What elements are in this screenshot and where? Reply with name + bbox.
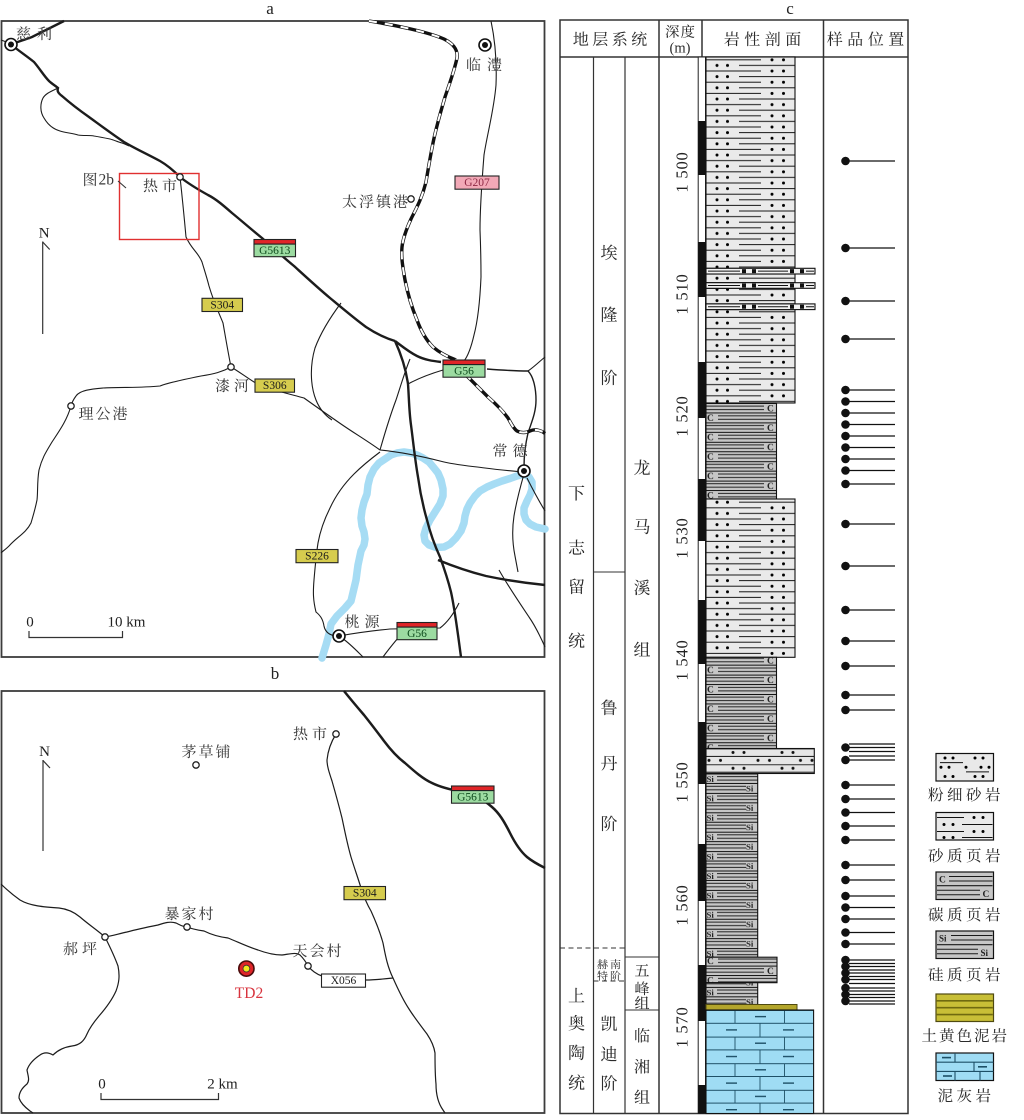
svg-text:Si: Si xyxy=(939,934,947,944)
svg-text:1 570: 1 570 xyxy=(673,1006,692,1047)
svg-text:S304: S304 xyxy=(353,888,377,900)
svg-text:1 530: 1 530 xyxy=(673,517,692,558)
svg-text:c: c xyxy=(786,0,794,18)
svg-text:1 560: 1 560 xyxy=(673,884,692,925)
svg-text:10 km: 10 km xyxy=(108,615,146,631)
svg-text:N: N xyxy=(39,744,50,760)
svg-text:X056: X056 xyxy=(331,975,357,987)
svg-text:2b: 2b xyxy=(99,172,115,189)
svg-text:1 550: 1 550 xyxy=(673,761,692,802)
svg-text:1 500: 1 500 xyxy=(673,151,692,192)
svg-text:Si: Si xyxy=(981,948,989,958)
svg-text:0: 0 xyxy=(98,1077,106,1093)
svg-text:b: b xyxy=(271,664,280,683)
svg-text:S306: S306 xyxy=(263,380,287,392)
svg-text:1 510: 1 510 xyxy=(673,273,692,314)
svg-text:1 520: 1 520 xyxy=(673,395,692,436)
svg-text:G56: G56 xyxy=(454,366,474,378)
svg-text:S226: S226 xyxy=(305,551,329,563)
svg-text:G5613: G5613 xyxy=(259,245,291,257)
svg-text:2 km: 2 km xyxy=(207,1077,238,1093)
svg-text:0: 0 xyxy=(26,615,34,631)
svg-text:S304: S304 xyxy=(210,300,234,312)
svg-text:C: C xyxy=(983,890,990,900)
svg-text:G5613: G5613 xyxy=(457,792,489,804)
svg-text:N: N xyxy=(39,226,50,242)
svg-text:a: a xyxy=(266,0,274,18)
svg-text:TD2: TD2 xyxy=(235,985,263,1002)
svg-text:G56: G56 xyxy=(407,628,427,640)
svg-text:C: C xyxy=(939,876,946,886)
svg-text:1 540: 1 540 xyxy=(673,639,692,680)
svg-text:G207: G207 xyxy=(464,177,490,189)
svg-text:(m): (m) xyxy=(670,41,691,57)
